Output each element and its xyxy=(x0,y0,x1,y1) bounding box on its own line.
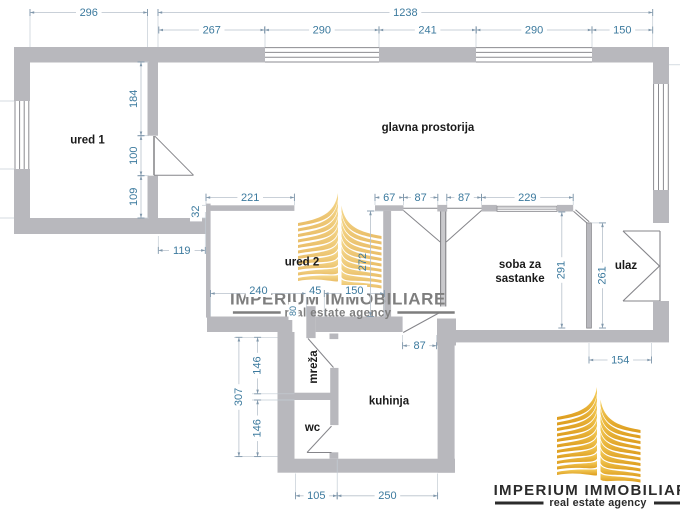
svg-text:87: 87 xyxy=(415,192,427,204)
svg-text:105: 105 xyxy=(307,490,325,502)
svg-text:109: 109 xyxy=(128,188,140,206)
svg-text:100: 100 xyxy=(128,147,140,165)
svg-text:250: 250 xyxy=(378,490,396,502)
svg-text:184: 184 xyxy=(128,90,140,108)
svg-text:glavna prostorija: glavna prostorija xyxy=(382,122,475,134)
svg-text:119: 119 xyxy=(173,245,191,257)
svg-text:ured 2: ured 2 xyxy=(285,257,320,269)
svg-text:272: 272 xyxy=(357,253,369,271)
svg-text:real estate agency: real estate agency xyxy=(549,497,646,509)
svg-text:154: 154 xyxy=(611,354,629,366)
svg-text:150: 150 xyxy=(613,24,631,36)
svg-text:146: 146 xyxy=(252,356,264,374)
svg-text:sastanke: sastanke xyxy=(495,273,544,285)
svg-text:mreža: mreža xyxy=(308,350,320,384)
svg-text:290: 290 xyxy=(525,24,543,36)
svg-text:67: 67 xyxy=(383,192,395,204)
svg-text:221: 221 xyxy=(241,192,259,204)
svg-text:150: 150 xyxy=(345,285,363,297)
svg-text:296: 296 xyxy=(80,7,98,19)
svg-text:229: 229 xyxy=(518,192,536,204)
svg-text:kuhinja: kuhinja xyxy=(369,396,410,408)
svg-text:real estate agency: real estate agency xyxy=(285,308,392,320)
svg-text:307: 307 xyxy=(233,388,245,406)
svg-text:241: 241 xyxy=(418,24,436,36)
svg-text:291: 291 xyxy=(556,261,568,279)
svg-text:146: 146 xyxy=(252,419,264,437)
svg-text:soba za: soba za xyxy=(499,259,542,271)
svg-text:ured 1: ured 1 xyxy=(70,135,105,147)
svg-text:261: 261 xyxy=(596,266,608,284)
svg-text:45: 45 xyxy=(309,285,321,297)
svg-text:290: 290 xyxy=(313,24,331,36)
svg-text:240: 240 xyxy=(249,285,267,297)
svg-text:wc: wc xyxy=(304,422,321,434)
svg-text:1238: 1238 xyxy=(393,7,417,19)
svg-text:87: 87 xyxy=(458,192,470,204)
svg-text:80: 80 xyxy=(288,306,298,316)
svg-text:267: 267 xyxy=(203,24,221,36)
svg-text:32: 32 xyxy=(190,206,202,218)
svg-text:87: 87 xyxy=(413,340,425,352)
svg-text:ulaz: ulaz xyxy=(615,260,638,272)
